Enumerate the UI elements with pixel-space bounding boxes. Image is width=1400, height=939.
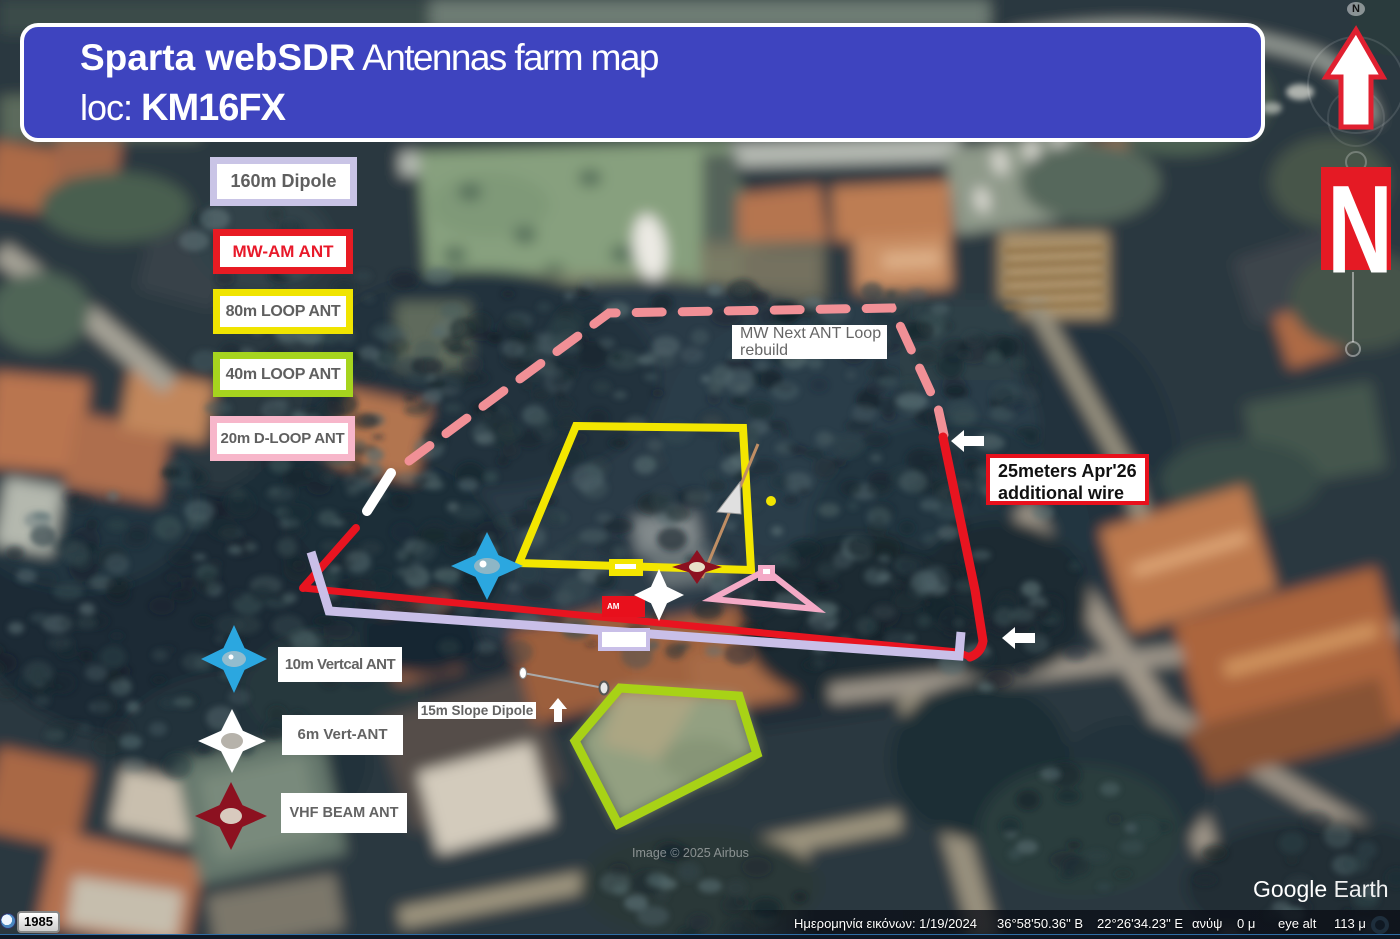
svg-text:AM: AM bbox=[607, 602, 620, 611]
